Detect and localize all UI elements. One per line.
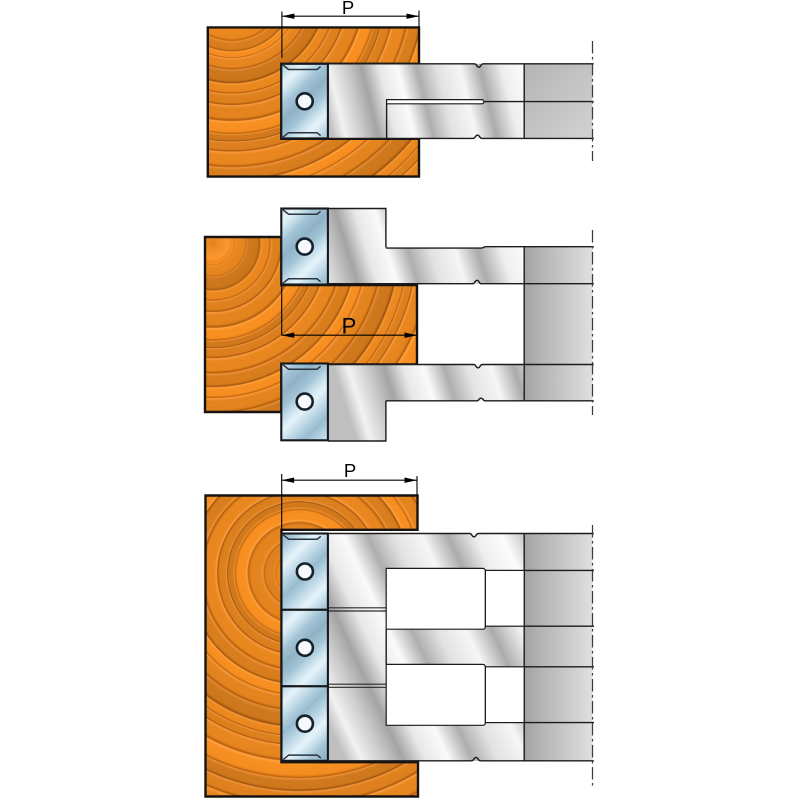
svg-text:P: P bbox=[342, 313, 357, 338]
svg-text:P: P bbox=[342, 0, 354, 18]
svg-text:P: P bbox=[344, 460, 356, 481]
